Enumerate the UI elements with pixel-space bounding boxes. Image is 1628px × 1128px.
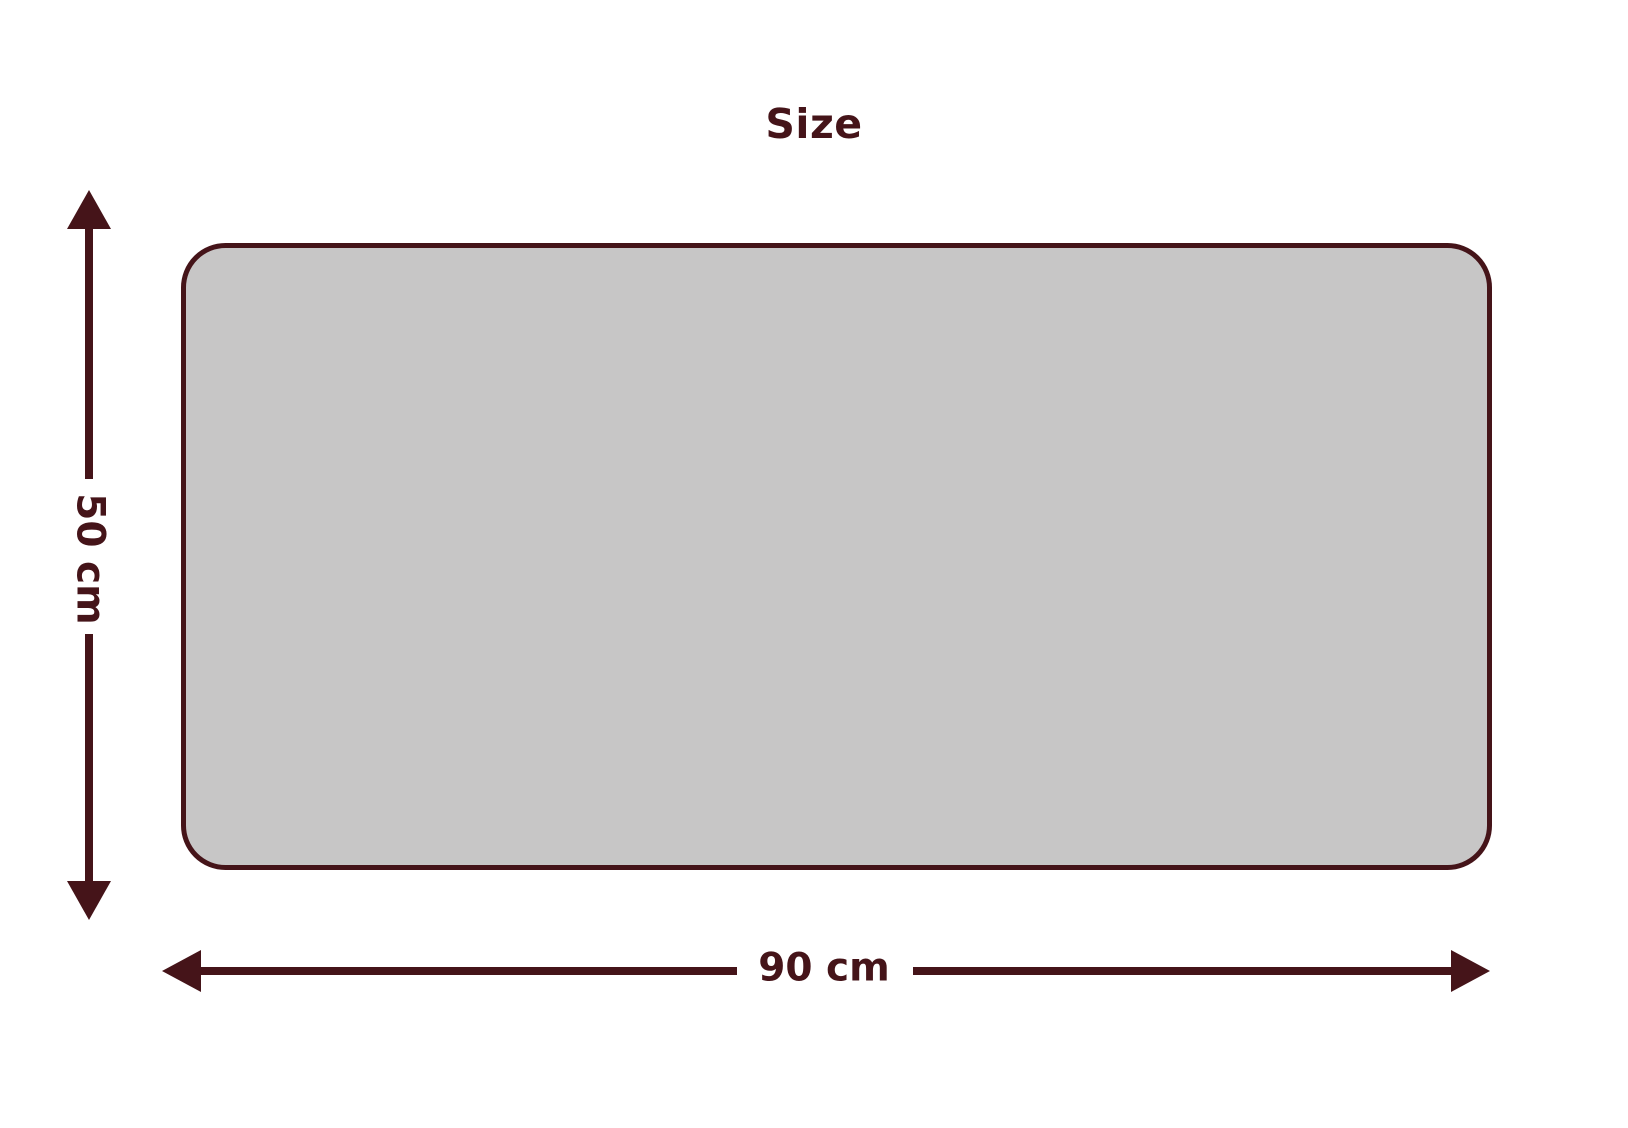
size-diagram: Size 50 cm 90 cm <box>0 0 1628 1128</box>
arrow-up-icon <box>67 190 111 229</box>
arrow-right-icon <box>1451 950 1490 992</box>
width-dimension-label: 90 cm <box>758 946 890 991</box>
arrow-left-icon <box>162 950 201 992</box>
height-dimension-label: 50 cm <box>68 493 113 625</box>
product-panel <box>184 246 1490 868</box>
arrow-down-icon <box>67 881 111 920</box>
